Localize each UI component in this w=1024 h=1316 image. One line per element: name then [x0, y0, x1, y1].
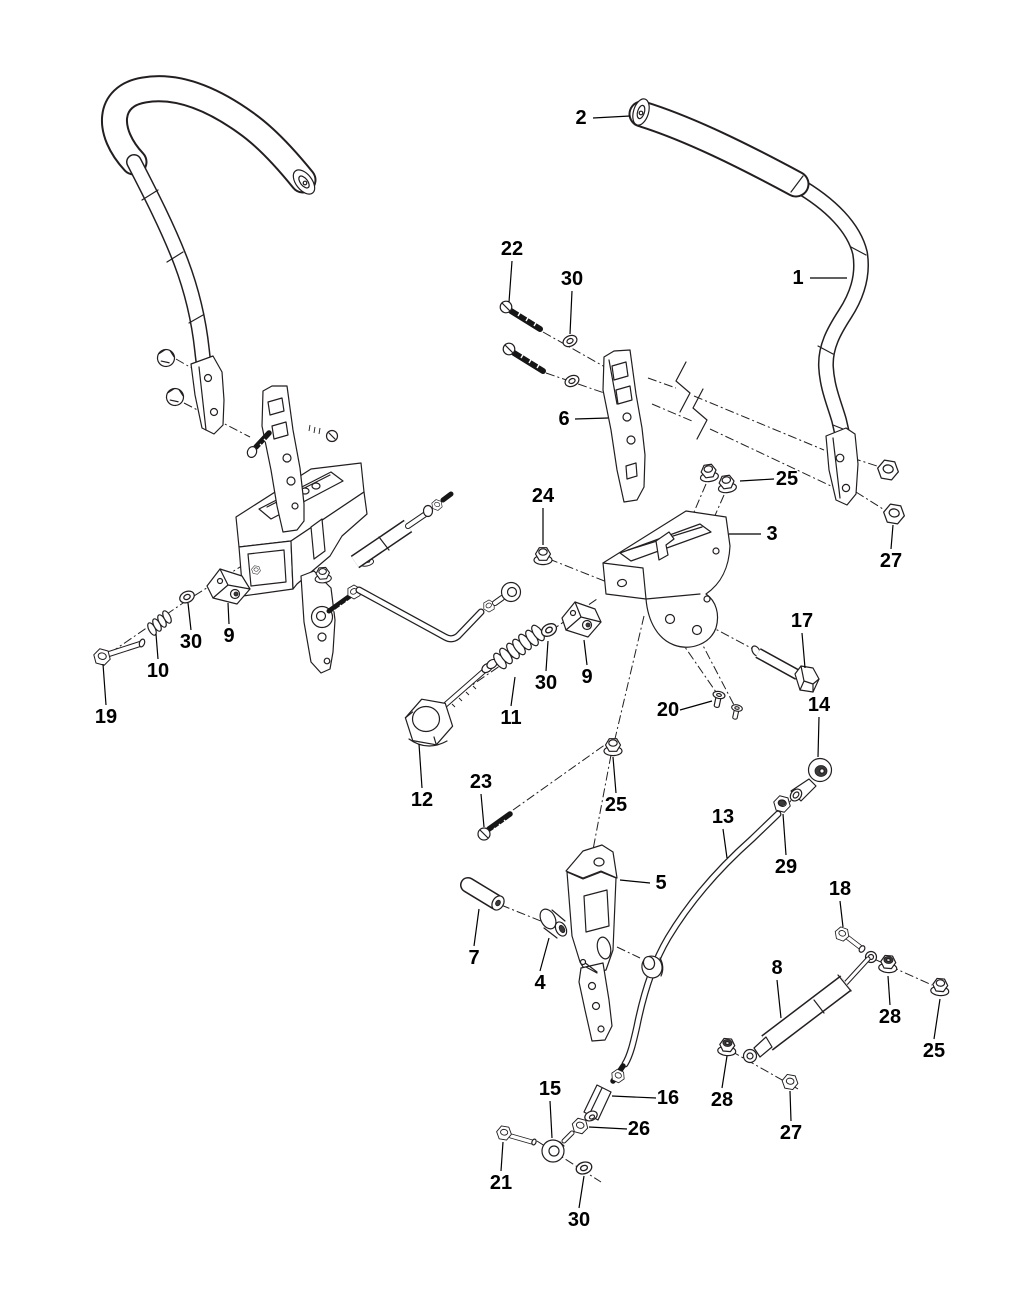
- callout-27-leader-32: [790, 1091, 791, 1121]
- callout-30-leader-37: [579, 1176, 584, 1208]
- callout-2-label-0: 2: [575, 107, 586, 129]
- callout-16-leader-33: [612, 1096, 656, 1098]
- callout-18-label-27: 18: [829, 878, 851, 900]
- callout-6-leader-4: [575, 418, 608, 419]
- callout-11-leader-15: [511, 677, 515, 706]
- part-25-flange-nut-right: [930, 978, 949, 996]
- callout-20-label-18: 20: [657, 699, 679, 721]
- callout-15-leader-35: [550, 1101, 552, 1138]
- callout-8-leader-28: [777, 980, 781, 1018]
- part-27-nuts-upper: [876, 459, 906, 525]
- callout-30-label-3: 30: [561, 268, 583, 290]
- part-4-bushing: [537, 906, 569, 938]
- callout-28-label-29: 28: [879, 1006, 901, 1028]
- callout-30-label-16: 30: [535, 672, 557, 694]
- callout-5-label-24: 5: [655, 872, 666, 894]
- callout-18-leader-27: [840, 901, 843, 927]
- callout-27-label-32: 27: [780, 1122, 802, 1144]
- callout-25-label-20: 25: [605, 794, 627, 816]
- callout-8-label-28: 8: [771, 957, 782, 979]
- part-29-jam-nut: [772, 795, 792, 813]
- callout-15-label-35: 15: [539, 1078, 561, 1100]
- callout-30-leader-16: [546, 641, 548, 671]
- callout-28-label-31: 28: [711, 1089, 733, 1111]
- part-21-bolt: [495, 1125, 536, 1145]
- callout-11-label-15: 11: [500, 707, 521, 729]
- callout-25-leader-30: [934, 999, 940, 1039]
- callout-9-leader-17: [584, 640, 587, 665]
- callout-25-leader-20: [613, 757, 616, 793]
- callout-22-label-2: 22: [501, 238, 523, 260]
- exploded-view-canvas: 2122306253272417309101912113092014252329…: [0, 0, 1024, 1316]
- part-28-nut-upper: [878, 955, 897, 973]
- callout-6-label-4: 6: [558, 408, 569, 430]
- part-6-strap: [603, 350, 645, 502]
- part-14-rod-end: [788, 759, 832, 804]
- part-12-knob: [405, 699, 452, 746]
- strap-pivot-screw: [308, 425, 338, 442]
- callout-10-leader-12: [156, 634, 158, 659]
- callout-28-leader-31: [722, 1056, 727, 1088]
- callout-24-label-8: 24: [532, 485, 555, 507]
- part-16-coupler: [583, 1085, 611, 1123]
- callout-17-leader-9: [802, 633, 805, 668]
- part-28-nut-lower: [717, 1038, 736, 1056]
- handle-mount-plate-right: [826, 428, 858, 505]
- callout-30-leader-10: [188, 603, 191, 630]
- callout-22-leader-2: [509, 261, 512, 302]
- part-1-handle-tube: [630, 97, 866, 505]
- callout-30-label-10: 30: [180, 631, 202, 653]
- callout-25-leader-5: [740, 479, 774, 481]
- part-10-spring: [146, 609, 173, 636]
- callout-30-leader-3: [570, 291, 572, 334]
- mount-bolt-left-lower: [165, 387, 185, 407]
- part-24-flange-nut: [534, 548, 552, 565]
- diagram-page: 2122306253272417309101912113092014252329…: [0, 0, 1024, 1316]
- callout-19-label-13: 19: [95, 706, 117, 728]
- callout-30-label-37: 30: [568, 1209, 590, 1231]
- left-control-assembly: [236, 386, 521, 673]
- callout-23-leader-21: [481, 794, 484, 827]
- callout-14-leader-19: [818, 717, 819, 757]
- callout-12-leader-14: [419, 744, 422, 788]
- callout-23-label-21: 23: [470, 771, 492, 793]
- part-19-bolt: [92, 638, 146, 666]
- part-2-grip: [630, 97, 796, 184]
- callout-27-label-7: 27: [880, 550, 902, 572]
- part-5-clevis: [566, 845, 617, 878]
- callout-2-leader-0: [593, 116, 630, 118]
- part-3-bracket: [603, 511, 730, 647]
- part-11-spring: [491, 623, 546, 670]
- callout-29-leader-22: [783, 814, 786, 855]
- part-25-flange-nut-mid: [604, 739, 622, 756]
- part-17-bolt: [750, 644, 819, 692]
- callout-14-label-19: 14: [808, 694, 831, 716]
- part-30-washers-top: [561, 333, 580, 389]
- callout-29-label-22: 29: [775, 856, 797, 878]
- callout-20-leader-18: [680, 701, 712, 710]
- linkage-rod: [312, 583, 521, 639]
- gas-spring: [355, 494, 451, 562]
- callout-28-leader-29: [888, 976, 890, 1005]
- callout-26-label-34: 26: [628, 1118, 650, 1140]
- callout-3-label-6: 3: [766, 523, 777, 545]
- left-handle-assembly: [114, 89, 318, 434]
- part-13-control-rod: [609, 814, 778, 1084]
- handle-mount-plate-left: [191, 356, 224, 434]
- callout-1-label-1: 1: [792, 267, 803, 289]
- callout-25-label-30: 25: [923, 1040, 945, 1062]
- callout-4-label-26: 4: [534, 972, 546, 994]
- callout-12-label-14: 12: [411, 789, 433, 811]
- part-8-damper-assembly: [717, 926, 949, 1091]
- callout-9-leader-11: [228, 603, 229, 624]
- callout-5-leader-24: [620, 880, 650, 883]
- part-30-washer-bottom: [575, 1160, 594, 1176]
- mount-bolt-left-upper: [156, 348, 176, 368]
- part-7-spacer: [468, 885, 507, 912]
- callout-16-label-33: 16: [657, 1087, 679, 1109]
- part-18-bolt: [833, 926, 866, 954]
- construction-lines: [110, 332, 932, 1182]
- callout-19-leader-13: [103, 664, 106, 705]
- part-22-bolts: [500, 301, 543, 371]
- part-8-damper: [744, 952, 877, 1063]
- callout-9-label-11: 9: [223, 625, 234, 647]
- callout-7-leader-25: [474, 909, 479, 946]
- part-20-rivets: [711, 690, 743, 720]
- part-25-flange-nuts-top: [699, 464, 737, 494]
- callout-9-label-17: 9: [581, 666, 592, 688]
- callout-27-leader-7: [891, 525, 893, 549]
- callout-4-leader-26: [540, 938, 549, 971]
- callout-13-label-23: 13: [712, 806, 734, 828]
- callout-13-leader-23: [723, 829, 727, 858]
- callout-25-label-5: 25: [776, 468, 798, 490]
- callout-10-label-12: 10: [147, 660, 169, 682]
- part-15-ball-joint: [542, 1133, 572, 1162]
- callout-21-leader-36: [501, 1142, 503, 1171]
- callout-7-label-25: 7: [468, 947, 479, 969]
- arm-pivot-bolt: [314, 567, 331, 584]
- callout-layer: 2122306253272417309101912113092014252329…: [95, 107, 945, 1231]
- part-30-washer-left: [178, 589, 196, 605]
- callout-26-leader-34: [589, 1127, 627, 1129]
- callout-17-label-9: 17: [791, 610, 813, 632]
- part-9-block-right: [562, 602, 601, 637]
- callout-21-label-36: 21: [490, 1172, 512, 1194]
- part-5-bracket-assembly: [468, 845, 665, 1041]
